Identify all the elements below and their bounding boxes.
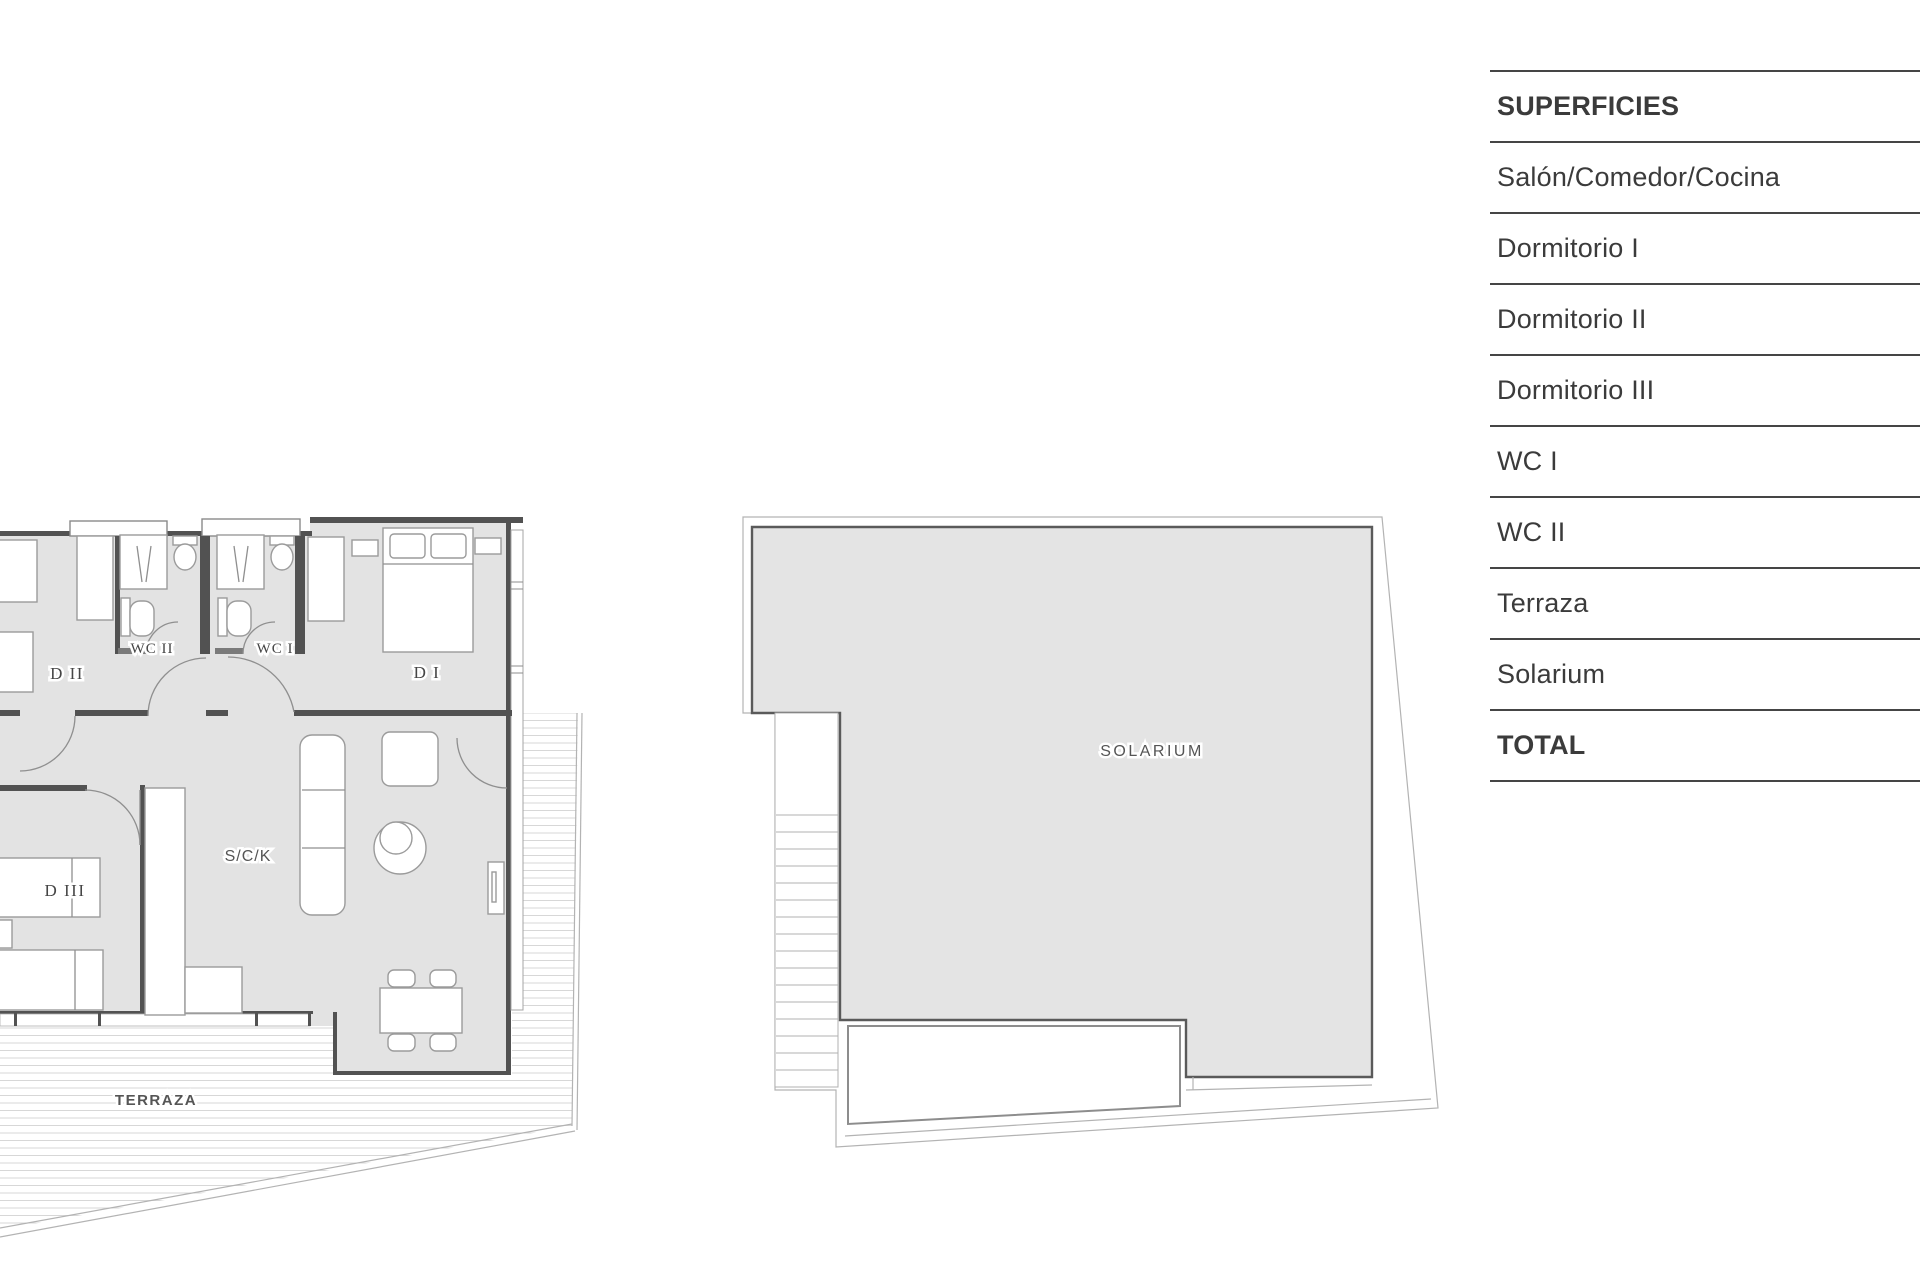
plant [380, 822, 412, 854]
dining-table [380, 988, 462, 1033]
solarium-staircase [775, 713, 838, 1087]
table-row-dormitorio-3: Dormitorio III [1490, 356, 1920, 427]
wc1-basin [271, 544, 293, 570]
d3-bed-2 [0, 950, 103, 1010]
tv [492, 872, 496, 902]
solarium-pool [848, 1026, 1180, 1124]
room-label-d1: D I [414, 663, 441, 682]
top-parapet-2 [202, 519, 300, 536]
table-row-dormitorio-2: Dormitorio II [1490, 285, 1920, 356]
room-label-d2: D II [50, 664, 84, 683]
armchair [382, 732, 438, 786]
wc2-toilet [130, 601, 154, 636]
table-row-terraza: Terraza [1490, 569, 1920, 640]
wc1-threshold [215, 648, 243, 654]
table-row-salon-comedor-cocina: Salón/Comedor/Cocina [1490, 143, 1920, 214]
table-row-total: TOTAL [1490, 711, 1920, 782]
d1-nightstand-right [475, 538, 501, 554]
d1-wardrobe [308, 537, 344, 621]
wc2-basin [174, 544, 196, 570]
dining-chair [430, 1034, 456, 1051]
d2-wardrobe [77, 536, 113, 620]
d2-desk [0, 632, 33, 692]
kitchen-counter-vertical [145, 788, 185, 1015]
table-row-dormitorio-1: Dormitorio I [1490, 214, 1920, 285]
room-label-wc1: WC I [257, 641, 294, 657]
dining-chair [430, 970, 456, 987]
room-label-terraza: TERRAZA [115, 1092, 197, 1109]
room-label-solarium: SOLARIUM [1100, 743, 1204, 760]
d3-nightstand [0, 920, 12, 948]
top-parapet-1 [70, 521, 167, 536]
kitchen-counter-bottom [185, 967, 242, 1013]
room-label-sck: S/C/K [225, 848, 272, 865]
table-row-wc-2: WC II [1490, 498, 1920, 569]
room-label-d3: D III [44, 881, 85, 900]
table-row-solarium: Solarium [1490, 640, 1920, 711]
room-label-wc2: WC II [131, 641, 174, 657]
solarium-floor [752, 527, 1372, 1077]
wc1-shower [217, 535, 264, 589]
wc2-cistern [121, 598, 130, 636]
d1-nightstand-left [352, 540, 378, 556]
wc1-cistern [218, 598, 227, 636]
sofa [300, 735, 345, 915]
apartment-floorplan: D II WC II WC I D I D III S/C/K TERRAZA [0, 517, 582, 1237]
table-row-wc-1: WC I [1490, 427, 1920, 498]
right-glazing [511, 530, 523, 1010]
d2-bed [0, 540, 37, 602]
wc1-toilet [227, 601, 251, 636]
wc2-shower [120, 535, 167, 589]
surfaces-table-header: SUPERFICIES [1490, 72, 1920, 143]
dining-chair [388, 970, 415, 987]
solarium-floorplan: SOLARIUM [743, 517, 1438, 1147]
dining-chair [388, 1034, 415, 1051]
surfaces-table: SUPERFICIES Salón/Comedor/Cocina Dormito… [1490, 70, 1920, 782]
bottom-glazing [0, 1014, 310, 1026]
